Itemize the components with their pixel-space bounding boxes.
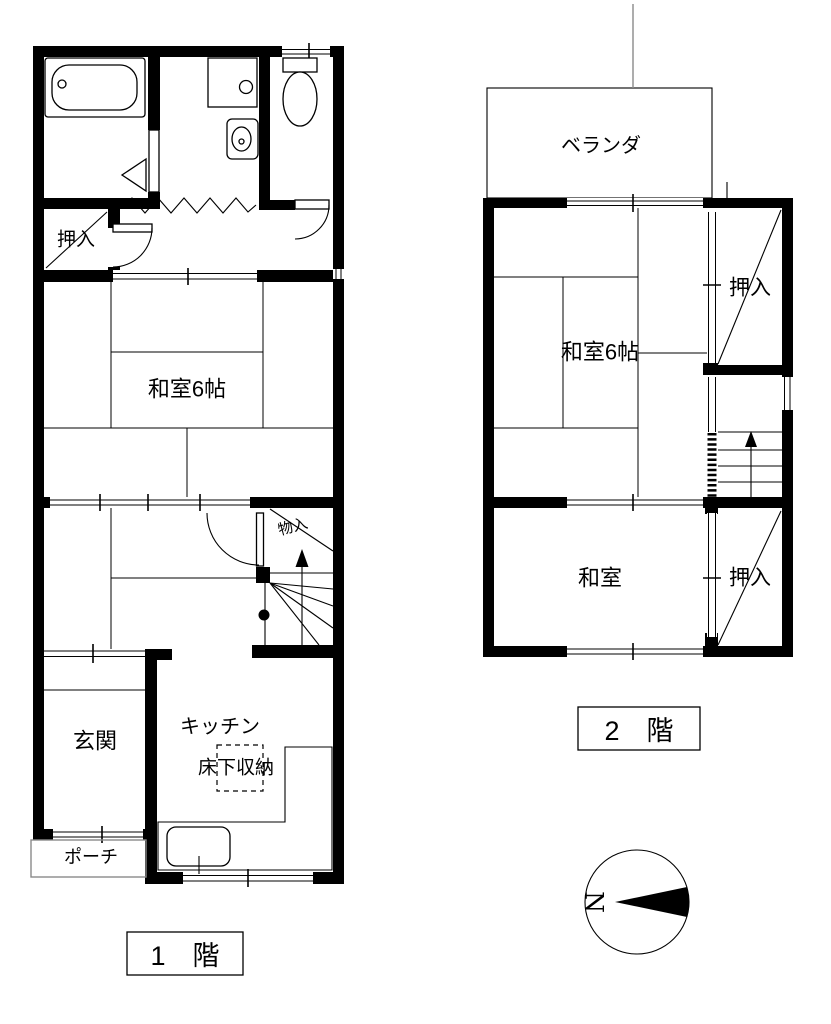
floor2-closet-lower-label: 押入: [729, 567, 771, 590]
porch-label: ポーチ: [64, 847, 118, 867]
north-label: N: [580, 891, 609, 913]
porch: ポーチ: [31, 840, 146, 877]
toilet-door: [295, 200, 329, 209]
floor2-washitsu: 和室: [578, 566, 622, 591]
floor1-middle-room: [111, 508, 264, 649]
veranda-label: ベランダ: [561, 134, 641, 157]
floor1-title: 1 階: [127, 932, 243, 975]
floorplan-page: 押入 和室6帖: [0, 0, 831, 1024]
floor1-title-text: 1 階: [150, 941, 219, 971]
floor1-washitsu6: 和室6帖: [44, 282, 333, 497]
floor2-title: 2 階: [578, 707, 700, 750]
genkan: 玄関: [44, 690, 145, 754]
toilet-room: [283, 58, 329, 239]
north-arrow-icon: [615, 887, 689, 917]
stair-start-dot: [259, 610, 270, 621]
up-arrow-icon: [745, 431, 757, 447]
floor1-washitsu6-label: 和室6帖: [148, 377, 226, 402]
floor2-washitsu-label: 和室: [578, 566, 622, 591]
stair-door: [257, 513, 264, 566]
floor2-closet-upper-label: 押入: [729, 277, 771, 300]
floor1-windows: [44, 43, 344, 887]
genkan-label: 玄関: [73, 729, 117, 754]
floor2-washitsu6-label: 和室6帖: [561, 340, 639, 365]
floor2-title-text: 2 階: [604, 716, 673, 746]
toilet-tank: [283, 58, 317, 72]
floor1-plan: 押入 和室6帖: [31, 43, 344, 975]
floor2-plan: ベランダ: [483, 4, 793, 750]
up-arrow-icon: [296, 549, 309, 567]
kitchen: キッチン 床下収納: [158, 716, 332, 874]
closet-door: [113, 224, 152, 232]
floor2-stairs: [707, 377, 782, 497]
bathroom: [45, 58, 159, 192]
floor2-washitsu6: 和室6帖: [494, 208, 707, 497]
underfloor-storage-label: 床下収納: [198, 757, 274, 779]
floor2-closet-lower: 押入: [703, 511, 781, 645]
bathroom-door: [149, 130, 159, 192]
toilet-bowl: [283, 72, 317, 126]
floor1-walls: [33, 46, 344, 884]
kitchen-label: キッチン: [180, 716, 260, 738]
floor2-closet-upper: 押入: [703, 210, 781, 364]
bathtub-faucet-icon: [58, 80, 66, 88]
floorplan-drawing: 押入 和室6帖: [0, 0, 831, 1024]
folding-door-icon: [122, 159, 146, 191]
floor1-closet: 押入: [46, 212, 152, 268]
compass: N: [580, 850, 690, 954]
floor1-storage-label: 物入: [276, 515, 309, 539]
veranda: ベランダ: [487, 4, 727, 198]
floor1-closet-label: 押入: [57, 229, 95, 251]
